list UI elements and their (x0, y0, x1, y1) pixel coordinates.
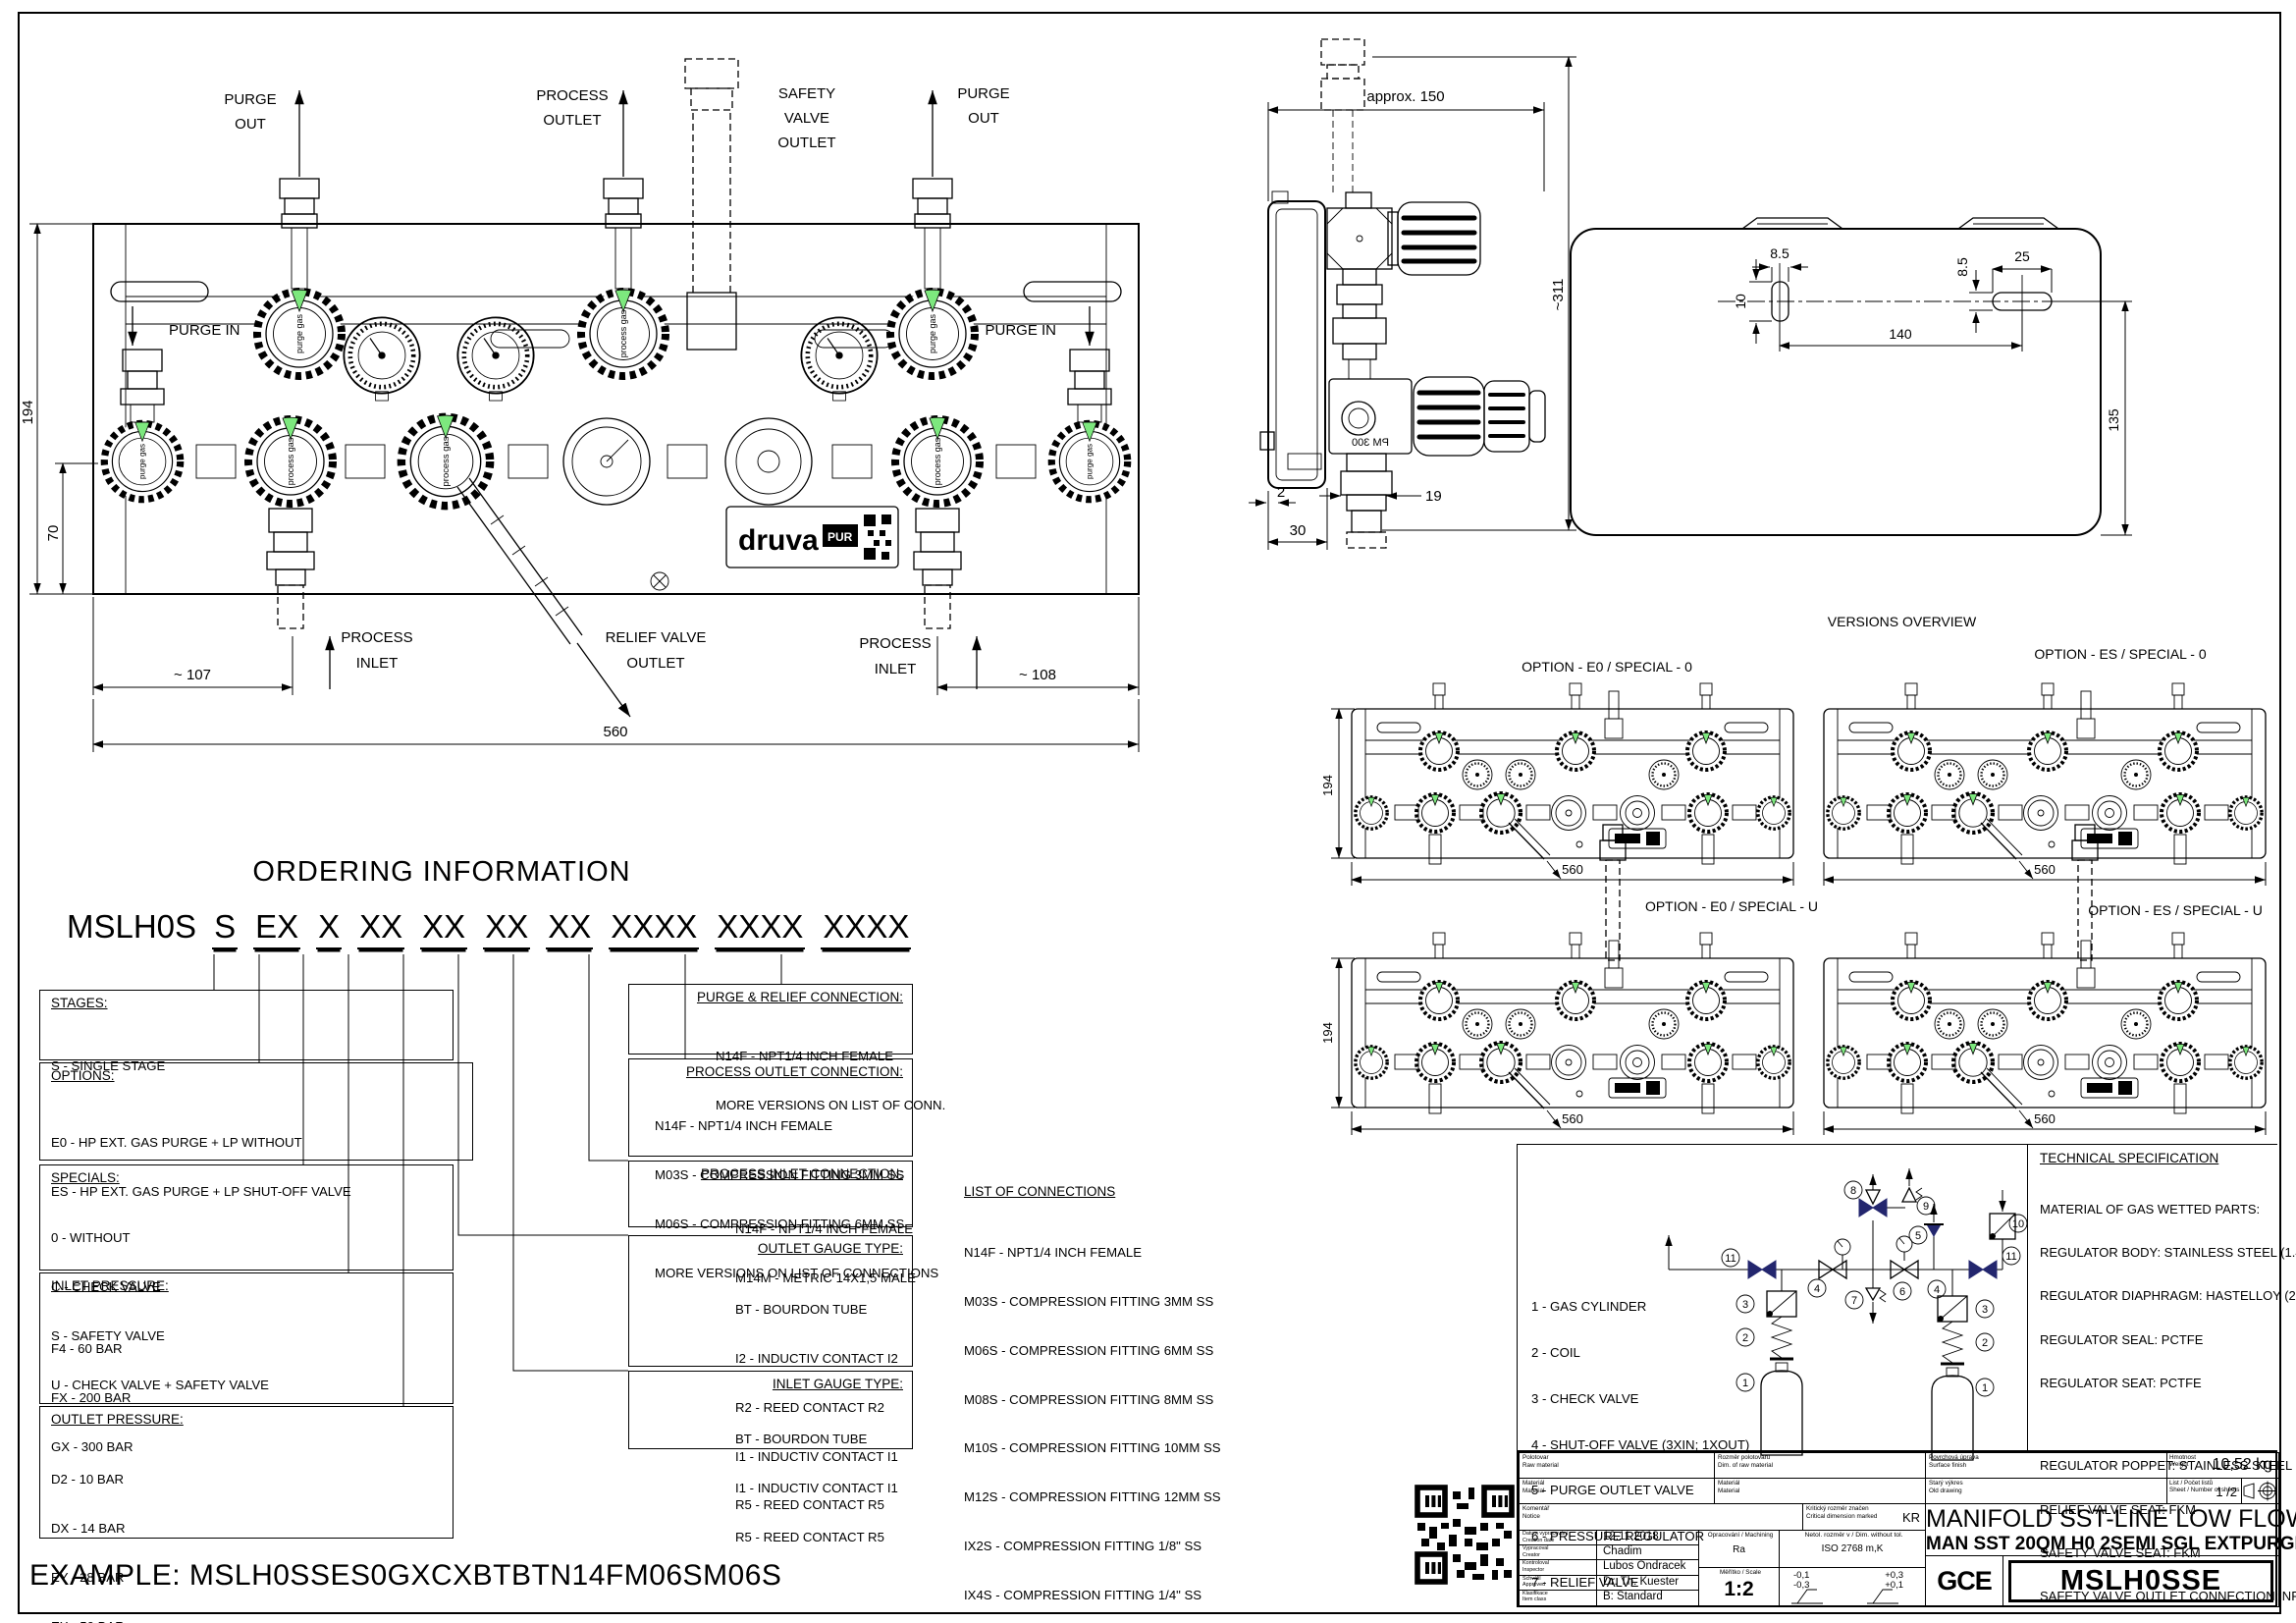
label-cz: Netol. rozměr v / Dim. without tol. (1780, 1531, 1925, 1539)
drawing-subtitle: MAN SST 20QM H0 2SEMI SGL EXTPURGE (1926, 1534, 2278, 1555)
label-cz: Měřítko / Scale (1699, 1568, 1779, 1576)
critical-dim-value: KR (1902, 1510, 1920, 1525)
num-6: 6 (1899, 1286, 1905, 1298)
inlet-gauge-box: INLET GAUGE TYPE: BT - BOURDON TUBE I1 -… (628, 1371, 913, 1449)
gce-logo: GCE (1926, 1566, 2002, 1596)
side-regulator: PM 300 (1329, 377, 1545, 456)
tolerance-standard: ISO 2768 m,K (1780, 1543, 1925, 1554)
legend-item: 3 - CHECK VALVE (1531, 1391, 1777, 1407)
front-view-drawing: 194 70 ~ 107 ~ 108 560 (29, 29, 1188, 776)
scale-cell: Měřítko / Scale 1:2 (1698, 1567, 1780, 1607)
stages-box: STAGES: S - SINGLE STAGE (39, 990, 454, 1060)
spec-gap (2040, 1421, 2273, 1431)
num-2: 2 (1982, 1337, 1988, 1349)
weight-cell: Hmotnost Weight 10,52 kg (2166, 1452, 2279, 1479)
label-cz: Kontroloval (1520, 1560, 1596, 1567)
wheel-label: purge gas (1086, 444, 1095, 479)
datamatrix-code-icon (1417, 1488, 1512, 1582)
gce-logo-cell: GCE (1925, 1555, 2003, 1607)
spec-line: REGULATOR BODY: STAINLESS STEEL (1.4404) (2040, 1246, 2273, 1261)
projection-symbol-cell (2241, 1478, 2279, 1504)
process-inlet-right-label: INLET (875, 661, 917, 677)
options-title: OPTIONS: (51, 1068, 115, 1083)
label-en: Approved (1520, 1582, 1596, 1589)
safety-valve-pipe (685, 59, 738, 350)
tolerance-note-cell: Netol. rozměr v / Dim. without tol. ISO … (1779, 1530, 1926, 1568)
label-cz: Klasifikace (1520, 1591, 1596, 1597)
specials-box: SPECIALS: 0 - WITHOUT C - CHECK VALVE S … (39, 1164, 454, 1271)
creator-label: Vypracoval Creator (1519, 1544, 1597, 1560)
opt-dim-194: 194 (1320, 775, 1335, 796)
critical-dim-cell: Kritický rozměr značen Critical dimensio… (1802, 1503, 1926, 1531)
wheel-label: process gas (933, 437, 942, 485)
dim-108: ~ 108 (1019, 667, 1056, 683)
num-1: 1 (1982, 1382, 1988, 1394)
num-8: 8 (1850, 1185, 1856, 1197)
label-cz: Materiál (1715, 1479, 1925, 1487)
projection-icon (2242, 1479, 2278, 1503)
process-outlet-title: PROCESS OUTLET CONNECTION: (686, 1064, 903, 1079)
opt-dim-194: 194 (1320, 1022, 1335, 1044)
label-en: Creation date (1520, 1538, 1596, 1544)
options-box: OPTIONS: E0 - HP EXT. GAS PURGE + LP WIT… (39, 1062, 473, 1161)
dim-140: 140 (1889, 326, 1912, 342)
num-4: 4 (1814, 1283, 1820, 1295)
process-outlet-fitting (604, 90, 643, 289)
approved-value: Dr. Th. Kuester (1596, 1575, 1699, 1591)
dim-8-5-right: 8.5 (1954, 257, 1970, 277)
connection-item: M08S - COMPRESSION FITTING 8MM SS (964, 1392, 1200, 1409)
connection-item: M12S - COMPRESSION FITTING 12MM SS (964, 1489, 1200, 1506)
label-en: Surface finish (1926, 1461, 2166, 1469)
label-cz: Polotovar (1520, 1453, 1714, 1461)
wheel-label: purge gas (928, 313, 937, 353)
versions-overview-title: VERSIONS OVERVIEW (1806, 614, 1998, 629)
opt-dim-560: 560 (1562, 1111, 1583, 1126)
side-bracket (1260, 191, 1325, 488)
qr-code-icon (864, 514, 891, 560)
safety-pipe-overlay-right (2072, 825, 2098, 960)
ordering-title: ORDERING INFORMATION (236, 856, 648, 889)
pur-badge: PUR (828, 530, 853, 544)
value: 12.11.2018 (1597, 1531, 1698, 1542)
num-10: 10 (2012, 1218, 2024, 1230)
num-4: 4 (1934, 1284, 1940, 1296)
label-cz: Schválil (1520, 1576, 1596, 1583)
creation-date-value: 12.11.2018 (1596, 1530, 1699, 1545)
connection-item: M10S - COMPRESSION FITTING 10MM SS (964, 1440, 1200, 1457)
purge-out-left-label: OUT (235, 116, 266, 133)
label-cz: Materiál (1520, 1479, 1714, 1487)
dim-25: 25 (2014, 248, 2030, 264)
part-number: MSLH0SSE (2060, 1565, 2221, 1597)
regulator-model-text: PM 300 (1352, 437, 1389, 449)
process-inlet-right-label: PROCESS (859, 635, 931, 652)
surface-symbols-icon (1780, 1568, 1927, 1607)
label-cz: Starý výkres (1926, 1479, 2166, 1487)
purge-relief-title: PURGE & RELIEF CONNECTION: (697, 990, 903, 1004)
class-label: Klasifikace Item class (1519, 1590, 1597, 1607)
label-cz: Rozměr polotovaru (1715, 1453, 1925, 1461)
wheel-label: process gas (441, 436, 452, 486)
dim-approx-150: approx. 150 (1366, 88, 1444, 105)
pid-right-branch (1932, 1261, 1997, 1460)
datasheet-page: 194 70 ~ 107 ~ 108 560 (0, 0, 2296, 1623)
wheel-label: process gas (286, 437, 295, 485)
outlet-pressure-item: EX - 50 BAR (51, 1619, 126, 1623)
dim-70: 70 (45, 525, 62, 542)
safety-valve-outlet-label: SAFETY (778, 85, 835, 102)
connection-item: M06S - COMPRESSION FITTING 6MM SS (964, 1343, 1200, 1360)
value: Lubos Ondracek (1597, 1560, 1698, 1572)
sheet-number-cell: List / Počet listů Sheet / Number of she… (2166, 1478, 2242, 1504)
side-dimensions: approx. 150 ~311 (1268, 57, 1576, 530)
purge-out-right-label: PURGE (957, 85, 1009, 102)
process-inlet-right-fitting (914, 509, 977, 689)
drawing-title-cell: MANIFOLD SST-LINE LOW FLOW H0 MAN SST 20… (1925, 1503, 2279, 1556)
value: Chadim (1597, 1545, 1698, 1557)
dim-107: ~ 107 (174, 667, 211, 683)
surface-finish-cell: Povrchová úprava Surface finish (1925, 1452, 2167, 1479)
label-en: Raw material (1520, 1461, 1714, 1469)
inlet-gauge-item: R5 - REED CONTACT R5 (735, 1530, 898, 1546)
spec-line: REGULATOR SEAL: PCTFE (2040, 1333, 2273, 1348)
process-inlet-left-label: INLET (356, 655, 399, 672)
num-3: 3 (1982, 1304, 1988, 1316)
purge-out-left-label: PURGE (224, 91, 276, 108)
druva-logo-plate: druva PUR (726, 507, 898, 568)
value: Dr. Th. Kuester (1597, 1576, 1698, 1588)
raw-material-cell: Polotovar Raw material (1519, 1452, 1715, 1479)
label-cz: Opracování / Machining (1699, 1531, 1779, 1539)
scale-value: 1:2 (1699, 1578, 1779, 1601)
old-drawing-cell: Starý výkres Old drawing (1925, 1478, 2167, 1504)
opt-dim-560: 560 (1562, 862, 1583, 877)
middle-row-valves: purge gas process gas process gas proces… (104, 415, 1127, 506)
legend-item: 1 - GAS CYLINDER (1531, 1299, 1777, 1315)
inspector-value: Lubos Ondracek (1596, 1559, 1699, 1575)
side-valve-body (1327, 192, 1480, 275)
label-en: Old drawing (1926, 1487, 2166, 1494)
mounting-plate-drawing: 8.5 10 8.5 25 140 135 (1551, 191, 2160, 565)
option-label-es-u: OPTION - ES / SPECIAL - U (2088, 902, 2263, 918)
process-outlet-box: PROCESS OUTLET CONNECTION: N14F - NPT1/4… (628, 1058, 913, 1157)
label-en: Material (1715, 1487, 1925, 1494)
connection-item: N14F - NPT1/4 INCH FEMALE (964, 1245, 1200, 1262)
weight-value: 10,52 kg (2213, 1456, 2272, 1474)
side-bottom-fitting (1341, 454, 1392, 548)
dim-135: 135 (2106, 408, 2121, 432)
mount-dimensions: 8.5 10 8.5 25 140 135 (1733, 245, 2132, 535)
machining-cell: Opracování / Machining Ra (1698, 1530, 1780, 1568)
outlet-gauge-title: OUTLET GAUGE TYPE: (758, 1241, 903, 1256)
label-en: Material (1520, 1487, 1714, 1494)
front-dimensions: 194 70 ~ 107 ~ 108 560 (20, 224, 1139, 752)
mount-plate (1571, 218, 2109, 535)
label-en: Notice (1520, 1512, 1802, 1520)
opt-dim-560: 560 (2034, 1111, 2056, 1126)
specials-item: 0 - WITHOUT (51, 1230, 269, 1247)
raw-dim-cell: Rozměr polotovaru Dim. of raw material (1714, 1452, 1926, 1479)
opt-dim-560: 560 (2034, 862, 2056, 877)
notice-cell: Komentář Notice (1519, 1503, 1803, 1531)
side-small-dims: 19 2 30 (1249, 484, 1442, 550)
wheel-label: purge gas (138, 444, 147, 479)
label-en: Item class (1520, 1596, 1596, 1603)
outlet-pressure-item: DX - 14 BAR (51, 1521, 126, 1538)
machining-value: Ra (1699, 1544, 1779, 1555)
num-5: 5 (1915, 1230, 1921, 1242)
process-inlet-left-fitting (267, 509, 330, 689)
options-item: E0 - HP EXT. GAS PURGE + LP WITHOUT (51, 1135, 351, 1152)
dim-19: 19 (1425, 488, 1442, 505)
label-en: Creator (1520, 1552, 1596, 1559)
outlet-pressure-box: OUTLET PRESSURE: D2 - 10 BAR DX - 14 BAR… (39, 1406, 454, 1539)
purge-out-right-label: OUT (968, 110, 999, 127)
dim-194: 194 (20, 400, 36, 424)
side-mid-fittings (1333, 269, 1386, 379)
inlet-gauge-item: BT - BOURDON TUBE (735, 1432, 898, 1448)
safety-pipe-overlay-left (1600, 825, 1626, 960)
outlet-pressure-title: OUTLET PRESSURE: (51, 1412, 184, 1427)
inlet-pressure-item: FX - 200 BAR (51, 1390, 133, 1407)
dim-30: 30 (1290, 522, 1307, 539)
approved-label: Schválil Approved (1519, 1575, 1597, 1591)
option-views: OPTION - E0 / SPECIAL - 0 OPTION - ES / … (1306, 628, 2277, 1139)
material-cell-2: Materiál Material (1714, 1478, 1926, 1504)
label-en: Inspector (1520, 1567, 1596, 1574)
label-cz: Datum vypracování (1520, 1531, 1596, 1538)
specials-title: SPECIALS: (51, 1170, 120, 1185)
front-labels: PURGE OUT PROCESS OUTLET SAFETY VALVE OU… (169, 85, 1056, 677)
process-outlet-label: OUTLET (543, 112, 601, 129)
label-cz: Hmotnost (2169, 1454, 2196, 1461)
purge-relief-box: PURGE & RELIEF CONNECTION: N14F - NPT1/4… (628, 984, 913, 1055)
material-cell: Materiál Material (1519, 1478, 1715, 1504)
dim-8-5: 8.5 (1770, 245, 1789, 261)
inlet-gauge-item: I1 - INDUCTIV CONTACT I1 (735, 1481, 898, 1497)
process-inlet-left-label: PROCESS (341, 629, 412, 646)
num-11: 11 (2005, 1251, 2016, 1263)
label-cz: Povrchová úprava (1926, 1453, 2166, 1461)
drawing-title: MANIFOLD SST-LINE LOW FLOW H0 (1926, 1505, 2278, 1534)
part-number-cell: MSLH0SSE (2002, 1555, 2279, 1607)
wheel-label: purge gas (294, 313, 304, 353)
label-en: Dim. of raw material (1715, 1461, 1925, 1469)
option-label-es-0: OPTION - ES / SPECIAL - 0 (2034, 646, 2207, 662)
legend-item: 2 - COIL (1531, 1345, 1777, 1361)
label-en: Weight (2169, 1461, 2196, 1468)
safety-valve-outlet-label: OUTLET (777, 135, 835, 151)
title-block: Polotovar Raw material Rozměr polotovaru… (1517, 1450, 2277, 1607)
relief-valve-pipe (457, 478, 630, 717)
connection-item: IX2S - COMPRESSION FITTING 1/8" SS (964, 1539, 1200, 1555)
purge-out-left-fitting (280, 90, 319, 289)
tolerance-values-cell: -0,1 -0,3 +0,3 +0,1 (1779, 1567, 1926, 1607)
outlet-gauge-item: BT - BOURDON TUBE (735, 1302, 898, 1319)
front-plate (93, 224, 1139, 594)
purge-in-left-label: PURGE IN (169, 322, 240, 339)
purge-out-right-fitting (913, 90, 952, 289)
example-code: EXAMPLE: MSLH0SSES0GXCXBTBTN14FM06SM06S (29, 1559, 781, 1593)
inlet-pressure-item: F4 - 60 BAR (51, 1341, 133, 1358)
wheel-label: process gas (618, 309, 628, 357)
option-label-e0-0: OPTION - E0 / SPECIAL - 0 (1522, 659, 1692, 675)
list-of-connections-title: LIST OF CONNECTIONS (964, 1184, 1200, 1199)
outlet-gauge-box: OUTLET GAUGE TYPE: BT - BOURDON TUBE I2 … (628, 1235, 913, 1367)
num-11: 11 (1725, 1253, 1735, 1265)
druva-logo-text: druva (738, 524, 819, 557)
sheet-value: 1 /2 (2216, 1485, 2237, 1499)
process-outlet-label: PROCESS (536, 87, 608, 104)
label-cz: Komentář (1520, 1504, 1802, 1512)
num-9: 9 (1923, 1201, 1929, 1213)
option-label-e0-u: OPTION - E0 / SPECIAL - U (1645, 898, 1818, 914)
inlet-pressure-title: INLET PRESSURE: (51, 1278, 169, 1293)
outlet-gauge-item: I2 - INDUCTIV CONTACT I2 (735, 1351, 898, 1368)
inlet-gauge-title: INLET GAUGE TYPE: (773, 1377, 903, 1391)
dim-2: 2 (1277, 484, 1285, 501)
creator-value: Chadim (1596, 1544, 1699, 1560)
process-inlet-box: PROCESS INLET CONNECTION: N14F - NPT1/4 … (628, 1161, 913, 1227)
value: B: Standard (1597, 1591, 1698, 1602)
num-7: 7 (1851, 1295, 1857, 1307)
creation-date-label: Datum vypracování Creation date (1519, 1530, 1597, 1545)
process-outlet-item: N14F - NPT1/4 INCH FEMALE (655, 1118, 938, 1135)
connection-item: M03S - COMPRESSION FITTING 3MM SS (964, 1294, 1200, 1311)
list-of-connections: LIST OF CONNECTIONS N14F - NPT1/4 INCH F… (964, 1184, 1200, 1623)
spec-line: MATERIAL OF GAS WETTED PARTS: (2040, 1203, 2273, 1217)
purge-in-right-label: PURGE IN (985, 322, 1056, 339)
stages-title: STAGES: (51, 996, 108, 1010)
inlet-pressure-box: INLET PRESSURE: F4 - 60 BAR FX - 200 BAR… (39, 1272, 454, 1404)
label-cz: Vypracoval (1520, 1545, 1596, 1552)
dim-10: 10 (1733, 294, 1748, 309)
relief-valve-outlet-label: OUTLET (626, 655, 684, 672)
inspector-label: Kontroloval Inspector (1519, 1559, 1597, 1575)
outlet-pressure-item: D2 - 10 BAR (51, 1472, 126, 1488)
safety-valve-outlet-label: VALVE (784, 110, 829, 127)
process-inlet-title: PROCESS INLET CONNECTION: (701, 1166, 903, 1181)
spec-line: REGULATOR DIAPHRAGM: HASTELLOY (2.4819) (2040, 1289, 2273, 1304)
relief-valve-outlet-label: RELIEF VALVE (606, 629, 707, 646)
spec-line: REGULATOR SEAT: PCTFE (2040, 1377, 2273, 1391)
dim-560: 560 (603, 724, 627, 740)
connection-item: IX4S - COMPRESSION FITTING 1/4" SS (964, 1588, 1200, 1604)
tech-spec-title: TECHNICAL SPECIFICATION (2040, 1151, 2273, 1165)
class-value: B: Standard (1596, 1590, 1699, 1607)
side-top-fitting (1321, 39, 1364, 194)
